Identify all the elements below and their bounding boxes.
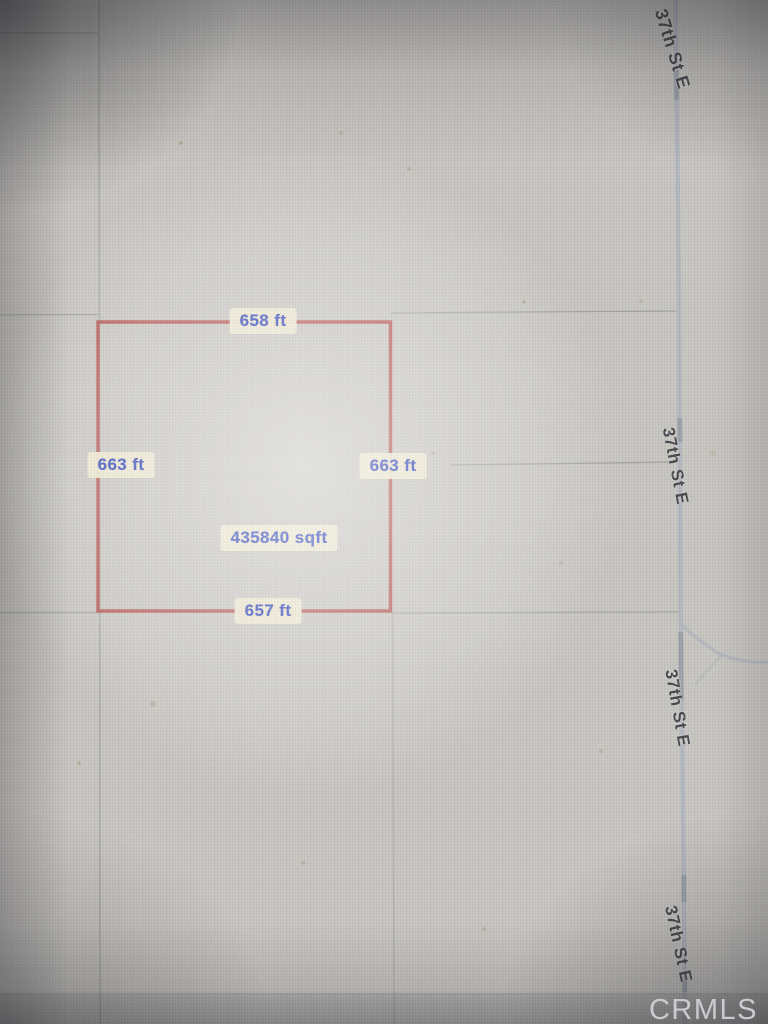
grid-line-right-of-parcel-mid	[450, 462, 680, 465]
parcel-grid-lines	[0, 0, 681, 1024]
parcel-bottom-length-label: 657 ft	[235, 598, 302, 624]
branch-road	[681, 624, 768, 662]
map-vector-layer	[0, 0, 768, 1024]
road-37th-st-e	[676, 0, 686, 1024]
parcel-top-length-label: 658 ft	[230, 308, 297, 334]
grid-line-right-of-parcel-bottom	[392, 612, 681, 613]
map-canvas[interactable]: 658 ft 663 ft 663 ft 435840 sqft 657 ft …	[0, 0, 768, 1024]
parcel-left-length-label: 663 ft	[88, 452, 155, 478]
grid-line-left-of-parcel-top	[0, 315, 98, 316]
parcel-area-label: 435840 sqft	[220, 525, 337, 551]
map-photo: 658 ft 663 ft 663 ft 435840 sqft 657 ft …	[0, 0, 768, 1024]
grid-line-vertical-east	[393, 613, 395, 1024]
parcel-right-length-label: 663 ft	[360, 453, 427, 479]
grid-line-right-of-parcel-top	[391, 311, 676, 313]
branch-road-spur	[696, 655, 722, 684]
crmls-watermark: CRMLS	[649, 994, 758, 1024]
